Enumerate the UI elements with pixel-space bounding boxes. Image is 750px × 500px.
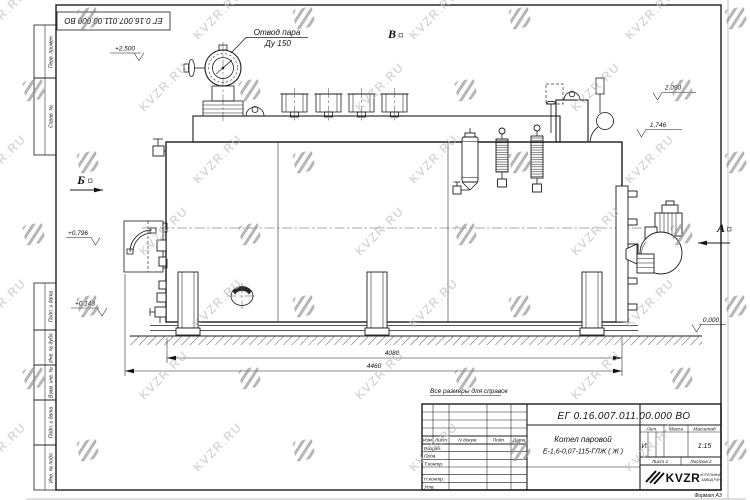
- doc-number: ЕГ 0.16.007.011.00.000 ВО: [558, 411, 691, 422]
- tb-header: Подп.: [493, 438, 506, 444]
- dim-value: 4460: [367, 363, 382, 370]
- tb-header: N докум.: [458, 438, 477, 444]
- sheets-total: Листов 2: [689, 459, 712, 465]
- level-value: 2,090: [664, 85, 682, 92]
- callout-line1: Отвод пара: [254, 28, 301, 37]
- steam-outlet-valve: [184, 42, 243, 121]
- front-nozzle: [157, 293, 166, 302]
- tb-row-label: Разраб.: [424, 446, 441, 452]
- manhole: [227, 283, 257, 309]
- view-marker-a: А: [698, 221, 731, 245]
- front-nozzle: [157, 240, 166, 251]
- drain-valve: [150, 307, 166, 323]
- logo-text: KVZR: [666, 471, 701, 485]
- margin-box: Справ. №: [34, 78, 56, 155]
- dimension-4460: 4460: [125, 363, 622, 373]
- margin-label: Справ. №: [48, 105, 54, 128]
- boiler-drawing: [124, 42, 702, 345]
- view-letter: В: [387, 27, 396, 41]
- doc-number-rotated: ЕГ 0.16.007.011.00.000 ВО: [64, 16, 162, 25]
- level-value: +0,143: [75, 301, 95, 308]
- dashed-outline: [546, 84, 563, 104]
- boiler-body: [166, 142, 622, 322]
- tb-header: Дата: [512, 438, 526, 444]
- drawing-canvas: Перв. примен. Справ. № Подп. и дата Инв.…: [0, 0, 750, 500]
- drum-casing-top: [193, 100, 588, 142]
- view-letter: Б: [76, 173, 85, 187]
- margin-label: Подп. и дата: [48, 291, 54, 323]
- margin-box: Инв. № подл.: [34, 445, 56, 490]
- front-nozzle: [159, 281, 166, 289]
- lit-header: Лит.: [645, 427, 657, 433]
- front-valve-top: [153, 139, 167, 156]
- mass-header: Масса: [669, 427, 684, 433]
- sheet-number: Лист 1: [651, 459, 669, 465]
- water-level-gauge: [496, 128, 508, 187]
- view-marker-b: Б: [70, 173, 103, 192]
- callout-line2: Ду 150: [264, 39, 291, 48]
- dim-value: 4080: [385, 350, 400, 357]
- scale-value: 1:15: [698, 443, 712, 450]
- level-value: 0,000: [703, 317, 720, 324]
- level-mark: 2,090: [653, 85, 696, 101]
- margin-box: Подп. и дата: [34, 400, 56, 445]
- logo-caption: КОТЕЛЬНЫЙ: [700, 473, 722, 477]
- reference-note: Все размеры для справок: [430, 387, 509, 395]
- margin-box: Подп. и дата: [34, 283, 56, 330]
- lifting-lug-left: [244, 107, 266, 117]
- logo-caption: ЗАВОД РЭН: [701, 478, 721, 482]
- front-fittings: [150, 139, 167, 323]
- support-leg: [365, 272, 389, 335]
- tb-header: Лист: [434, 438, 447, 444]
- product-name: Котел паровой: [554, 435, 612, 444]
- product-model: Е-1,6-0,07-115-ГЛЖ ( Ж ): [543, 449, 623, 456]
- level-mark: +0,796: [66, 230, 100, 245]
- level-mark: +0,143: [71, 301, 107, 317]
- margin-label: Перв. примен.: [48, 35, 54, 68]
- burner-unit: [626, 201, 682, 274]
- steam-outlet-callout: Отвод пара Ду 150: [231, 28, 308, 53]
- margin-box: Взам. инв. №: [34, 365, 56, 400]
- format-label: Формат А3: [694, 493, 722, 499]
- base-rails: [150, 326, 638, 331]
- margin-label: Инв. № подл.: [48, 452, 54, 483]
- level-value: +2,500: [115, 46, 135, 53]
- tb-row-label: Н.контр.: [424, 477, 444, 483]
- scale-header: Масштаб: [693, 427, 716, 433]
- margin-label: Подп. и дата: [48, 407, 54, 439]
- pressure-gauge-siphon: [590, 78, 614, 142]
- view-markers: Б В А: [70, 27, 731, 245]
- tb-row-label: Пров.: [424, 454, 437, 460]
- support-leg: [176, 272, 200, 335]
- margin-box: Перв. примен.: [34, 25, 56, 78]
- level-value: +0,796: [68, 230, 88, 237]
- safety-valve-vessel: [453, 128, 478, 194]
- level-mark: 1,746: [637, 122, 682, 137]
- margin-column-boxes: Перв. примен. Справ. № Подп. и дата Инв.…: [34, 25, 56, 490]
- tb-row-label: Т.контр.: [424, 461, 443, 467]
- view-letter: А: [716, 221, 725, 235]
- margin-label: Взам. инв. №: [48, 366, 54, 398]
- ground-hatching: [130, 336, 702, 345]
- margin-box: Инв. № дубл.: [34, 330, 56, 365]
- water-level-gauge: [531, 125, 543, 192]
- support-leg: [580, 272, 604, 335]
- dimension-4080: 4080: [167, 350, 622, 360]
- tb-header: Изм: [423, 438, 433, 444]
- doc-number-box-rotated: ЕГ 0.16.007.011.00.000 ВО: [57, 12, 170, 30]
- level-mark: +2,500: [110, 46, 144, 61]
- front-nozzle: [159, 257, 166, 266]
- view-marker-v: В: [387, 27, 403, 41]
- title-block: ЕГ 0.16.007.011.00.000 ВО Котел паровой …: [422, 404, 722, 490]
- drum-top-valve: [546, 101, 556, 133]
- kvzr-logo: KVZR КОТЕЛЬНЫЙ ЗАВОД РЭН: [645, 470, 722, 485]
- level-value: 1,746: [650, 122, 667, 129]
- lit-value: И: [641, 443, 647, 450]
- tb-row-label: Утв.: [424, 484, 435, 490]
- margin-label: Инв. № дубл.: [48, 332, 54, 363]
- lifting-lug-right: [561, 91, 583, 100]
- drawing-sheet: Перв. примен. Справ. № Подп. и дата Инв.…: [0, 0, 750, 500]
